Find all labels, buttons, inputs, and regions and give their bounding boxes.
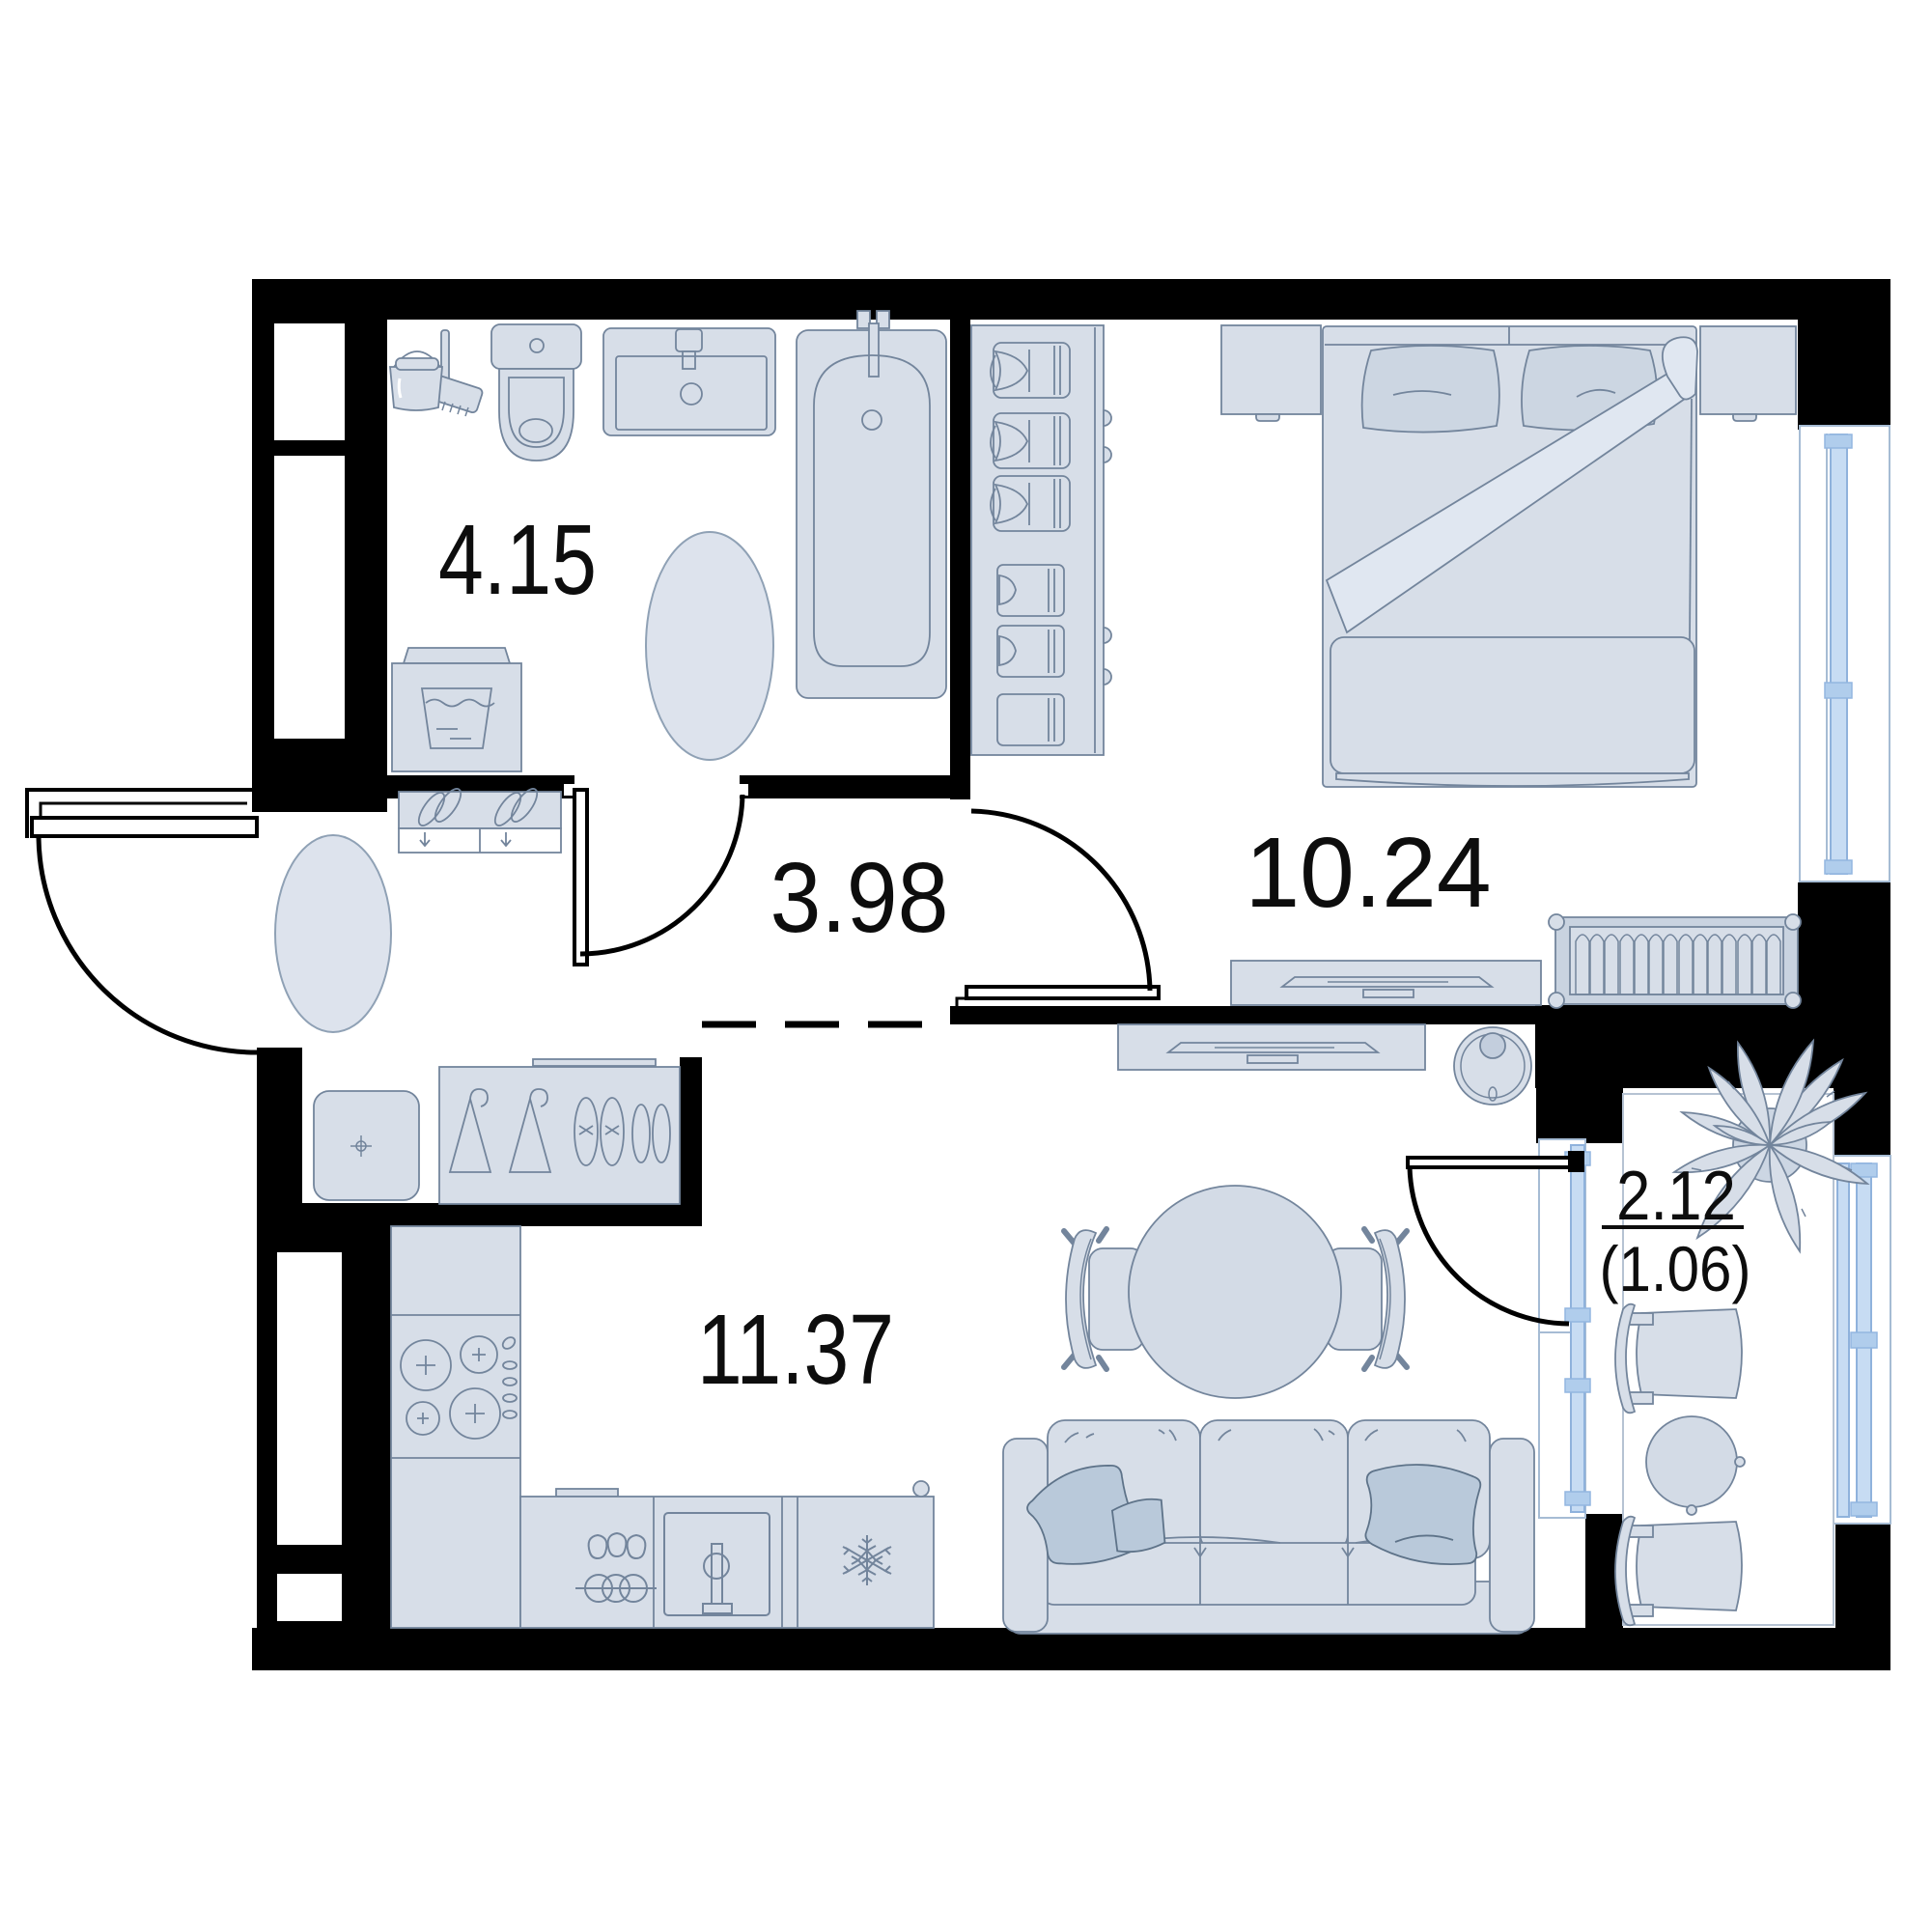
svg-text:2.12: 2.12 [1616, 1158, 1736, 1235]
svg-text:(1.06): (1.06) [1600, 1233, 1751, 1304]
svg-text:10.24: 10.24 [1246, 817, 1492, 928]
svg-text:11.37: 11.37 [697, 1294, 894, 1405]
svg-text:4.15: 4.15 [438, 504, 597, 615]
svg-text:3.98: 3.98 [770, 842, 949, 953]
